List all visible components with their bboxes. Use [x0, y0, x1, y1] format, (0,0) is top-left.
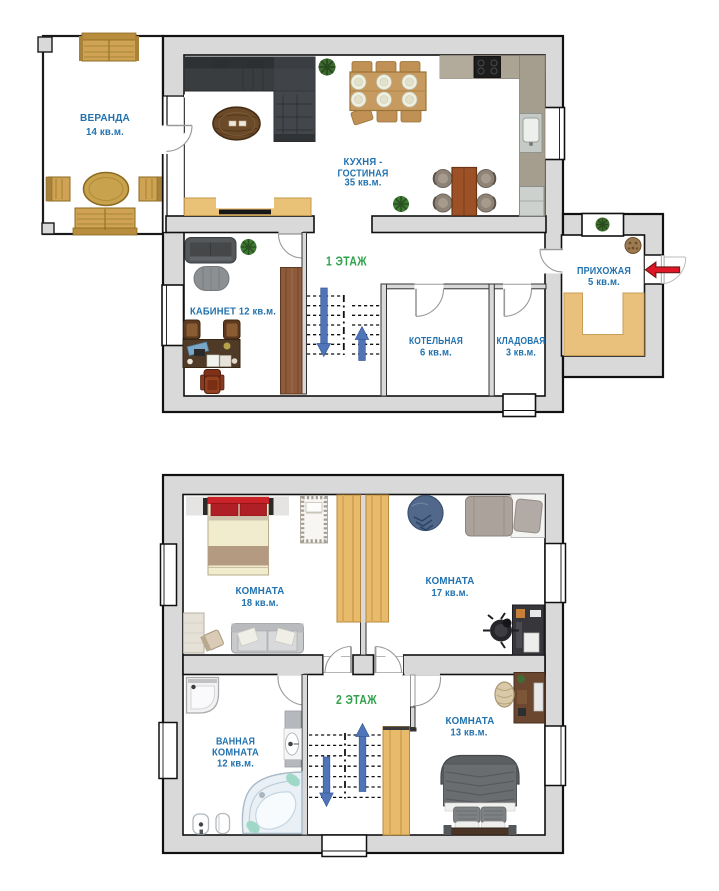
svg-text:КОМНАТА: КОМНАТА — [212, 748, 259, 759]
svg-text:6 кв.м.: 6 кв.м. — [420, 348, 452, 359]
svg-text:КОМНАТА: КОМНАТА — [426, 576, 475, 587]
svg-text:ВАННАЯ: ВАННАЯ — [216, 737, 255, 748]
svg-text:КОМНАТА: КОМНАТА — [446, 716, 495, 727]
svg-text:КАБИНЕТ 12 кв.м.: КАБИНЕТ 12 кв.м. — [190, 307, 276, 318]
svg-text:2 ЭТАЖ: 2 ЭТАЖ — [336, 693, 377, 707]
svg-text:КОТЕЛЬНАЯ: КОТЕЛЬНАЯ — [409, 336, 463, 347]
svg-text:КЛАДОВАЯ: КЛАДОВАЯ — [497, 336, 546, 347]
svg-text:35 кв.м.: 35 кв.м. — [345, 178, 382, 189]
svg-text:18 кв.м.: 18 кв.м. — [242, 598, 279, 609]
svg-text:12 кв.м.: 12 кв.м. — [217, 759, 254, 770]
svg-text:5 кв.м.: 5 кв.м. — [588, 277, 620, 288]
svg-text:17 кв.м.: 17 кв.м. — [432, 588, 469, 599]
svg-text:1 ЭТАЖ: 1 ЭТАЖ — [326, 255, 367, 269]
svg-text:ПРИХОЖАЯ: ПРИХОЖАЯ — [577, 266, 631, 277]
svg-text:КУХНЯ -: КУХНЯ - — [344, 157, 383, 168]
svg-text:ВЕРАНДА: ВЕРАНДА — [80, 113, 130, 124]
svg-text:13 кв.м.: 13 кв.м. — [451, 728, 488, 739]
svg-text:КОМНАТА: КОМНАТА — [236, 586, 285, 597]
svg-text:14 кв.м.: 14 кв.м. — [86, 127, 124, 138]
svg-text:3 кв.м.: 3 кв.м. — [506, 348, 536, 359]
